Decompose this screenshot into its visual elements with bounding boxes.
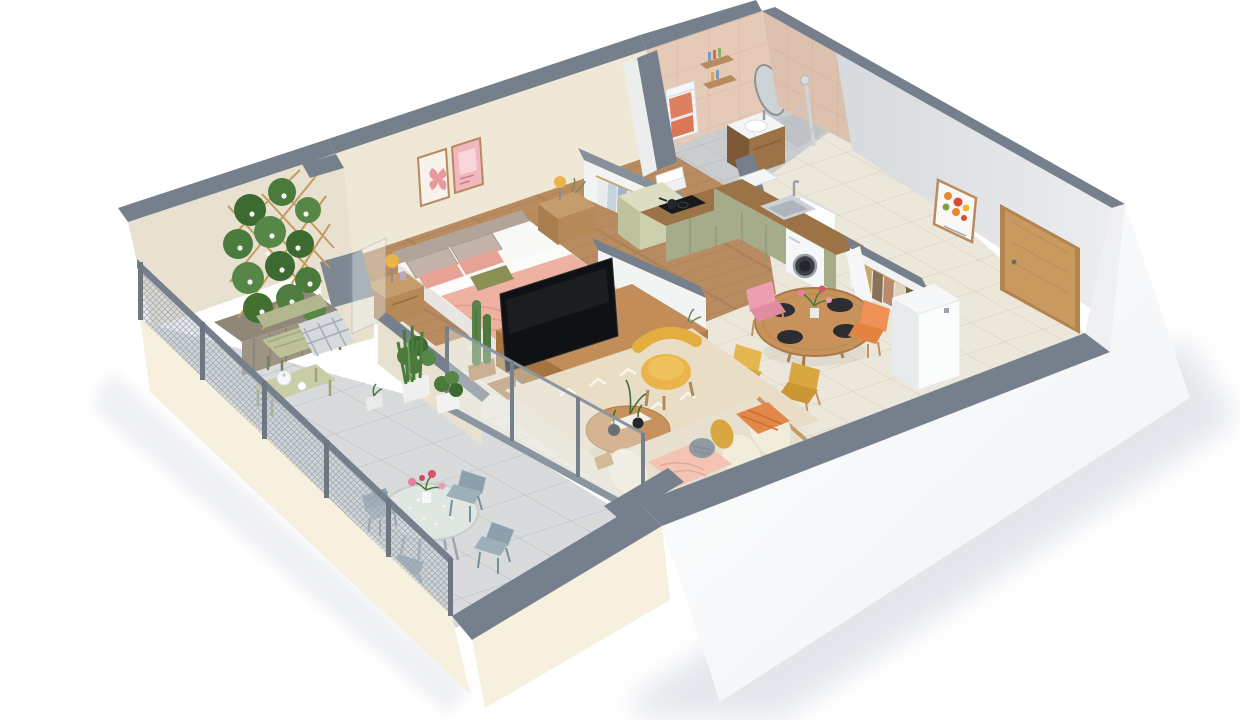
cabinet-logo [944,308,949,313]
basin [745,120,767,132]
vase [400,272,406,280]
teapot [277,371,291,385]
door-handle [1012,260,1017,265]
black-pot [633,418,644,429]
flower-vase [422,492,431,503]
white-cabinet [892,284,960,390]
teacup [298,382,306,390]
poster-botanical [418,149,449,206]
floor-plan-render [0,0,1240,720]
lamp [385,254,399,268]
lamp [554,176,566,188]
poster-pink [452,138,483,193]
pan [667,199,677,209]
isometric-apartment-svg [0,0,1240,720]
